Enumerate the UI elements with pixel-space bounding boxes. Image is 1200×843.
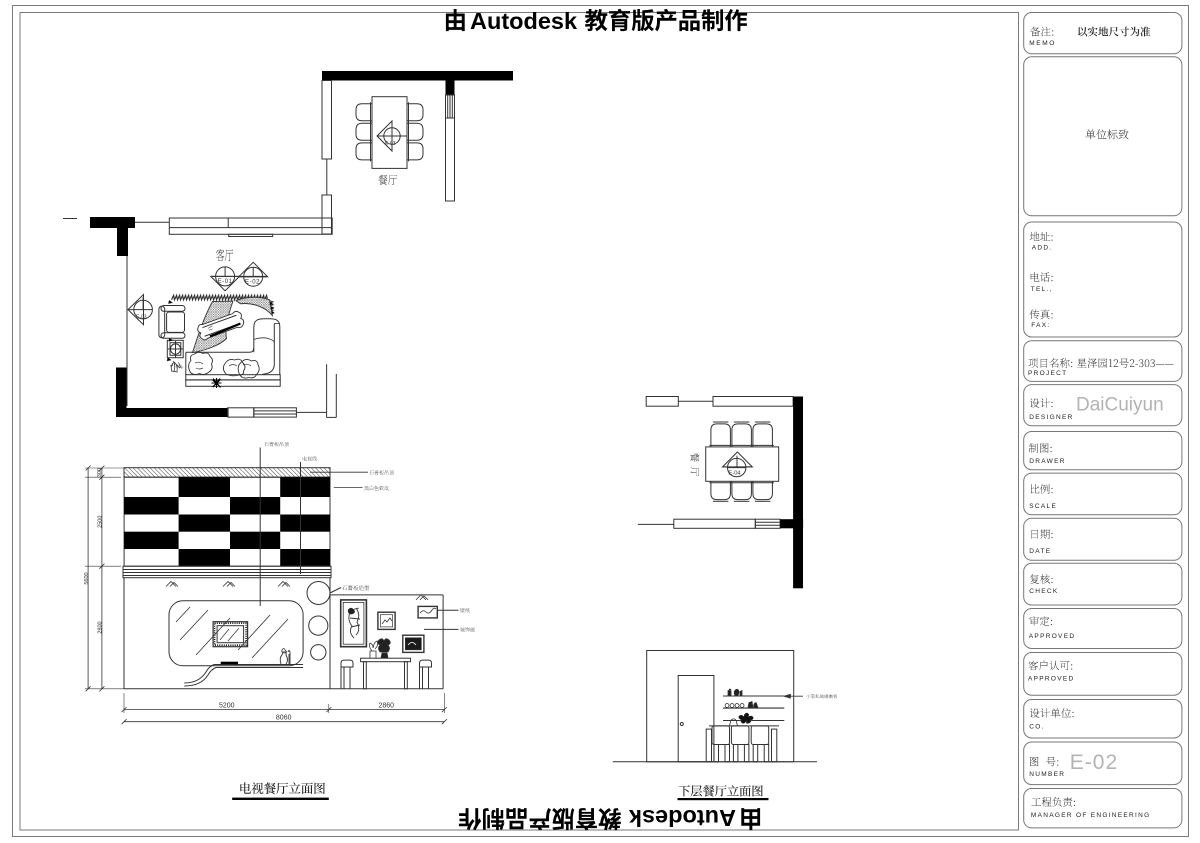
svg-text:MEMO: MEMO [1029, 40, 1056, 47]
svg-text:SCALE: SCALE [1029, 503, 1057, 510]
svg-text:Autodesk: Autodesk [470, 8, 578, 34]
svg-text:FAX:: FAX: [1031, 322, 1050, 329]
svg-text:CO.: CO. [1029, 723, 1044, 730]
svg-text:CHECK: CHECK [1029, 588, 1058, 595]
svg-text:5200: 5200 [219, 702, 235, 709]
svg-text:E-02: E-02 [1070, 751, 1118, 774]
svg-text:E-04: E-04 [728, 470, 741, 476]
svg-text:DaiCuiyun: DaiCuiyun [1076, 395, 1164, 416]
svg-text:2800: 2800 [98, 621, 104, 633]
svg-text:ADD.: ADD. [1032, 245, 1053, 252]
svg-text:2860: 2860 [379, 702, 395, 709]
svg-text:2500: 2500 [98, 516, 104, 528]
svg-text:MANAGER OF ENGINEERING: MANAGER OF ENGINEERING [1031, 812, 1151, 819]
svg-text:E-02: E-02 [245, 279, 260, 285]
svg-text:5600: 5600 [84, 572, 90, 584]
svg-text:DRAWER: DRAWER [1029, 458, 1065, 465]
svg-text:APPROVED: APPROVED [1028, 675, 1075, 682]
svg-text:TEL.,: TEL., [1031, 286, 1053, 293]
svg-text:E-03: E-03 [385, 141, 396, 147]
svg-text:E-01: E-01 [218, 279, 233, 285]
svg-text:DATE: DATE [1029, 548, 1051, 555]
svg-text:DESIGNER: DESIGNER [1029, 414, 1073, 421]
svg-text:Autodesk: Autodesk [628, 805, 736, 831]
svg-text:8060: 8060 [276, 715, 292, 722]
svg-text:APPROVED: APPROVED [1029, 633, 1076, 640]
svg-text:300: 300 [97, 468, 103, 477]
svg-text:E-03: E-03 [136, 315, 147, 321]
svg-text:PROJECT: PROJECT [1028, 370, 1067, 377]
svg-text:NUMBER: NUMBER [1029, 771, 1065, 778]
